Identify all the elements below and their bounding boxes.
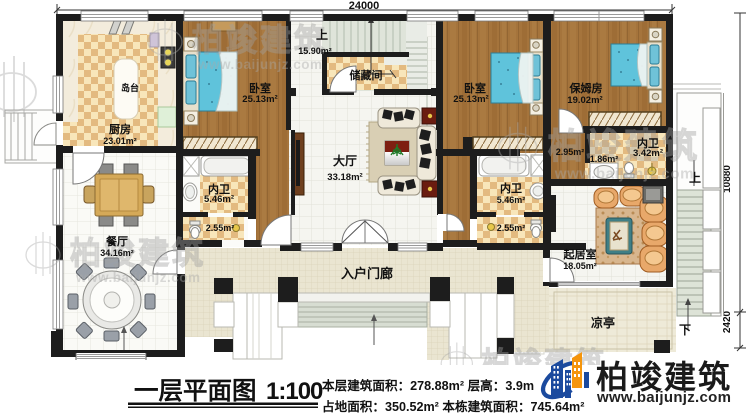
svg-text:占地面积：350.52m² 本栋建筑面积：745.64m²: 占地面积：350.52m² 本栋建筑面积：745.64m² <box>322 399 584 414</box>
svg-text:保姆房: 保姆房 <box>569 81 603 95</box>
svg-text:33.18m²: 33.18m² <box>327 172 362 183</box>
svg-text:19.02m²: 19.02m² <box>567 95 602 106</box>
svg-text:本层建筑面积：278.88m² 层高：3.9m: 本层建筑面积：278.88m² 层高：3.9m <box>322 378 534 393</box>
svg-text:储藏间: 储藏间 <box>350 68 383 82</box>
svg-text:2.55m²: 2.55m² <box>497 223 526 233</box>
svg-text:大厅: 大厅 <box>333 153 357 168</box>
svg-text:23.01m²: 23.01m² <box>103 136 137 146</box>
svg-text:www.baijunjz.com: www.baijunjz.com <box>596 389 731 406</box>
svg-text:厨房: 厨房 <box>109 122 131 136</box>
svg-text:34.16m²: 34.16m² <box>100 248 134 258</box>
svg-text:24000: 24000 <box>349 0 380 12</box>
svg-text:卧室: 卧室 <box>249 81 271 95</box>
svg-text:卧室: 卧室 <box>464 81 486 95</box>
svg-text:一层平面图: 一层平面图 <box>134 378 257 405</box>
svg-text:2.95m²: 2.95m² <box>556 147 585 157</box>
svg-text:2.55m²: 2.55m² <box>206 223 235 233</box>
svg-text:5.46m²: 5.46m² <box>204 194 234 205</box>
svg-text:入户门廊: 入户门廊 <box>341 266 393 281</box>
svg-text:起居室: 起居室 <box>563 247 597 261</box>
svg-text:25.13m²: 25.13m² <box>453 94 488 105</box>
svg-text:内卫: 内卫 <box>500 181 522 195</box>
svg-text:3.42m²: 3.42m² <box>633 148 663 159</box>
svg-text:1.86m²: 1.86m² <box>590 154 619 164</box>
svg-text:5.46m²: 5.46m² <box>497 195 526 205</box>
svg-text:上: 上 <box>316 27 328 42</box>
svg-text:下: 下 <box>679 323 691 337</box>
svg-text:餐厅: 餐厅 <box>105 234 128 248</box>
svg-text:凉亭: 凉亭 <box>591 315 615 330</box>
svg-text:25.13m²: 25.13m² <box>242 94 277 105</box>
svg-text:15.90m²: 15.90m² <box>298 46 332 56</box>
svg-text:1:100: 1:100 <box>266 378 323 405</box>
svg-text:18.05m²: 18.05m² <box>563 261 597 271</box>
svg-text:www.baijunjz.com: www.baijunjz.com <box>197 57 323 72</box>
svg-text:岛台: 岛台 <box>121 82 139 93</box>
